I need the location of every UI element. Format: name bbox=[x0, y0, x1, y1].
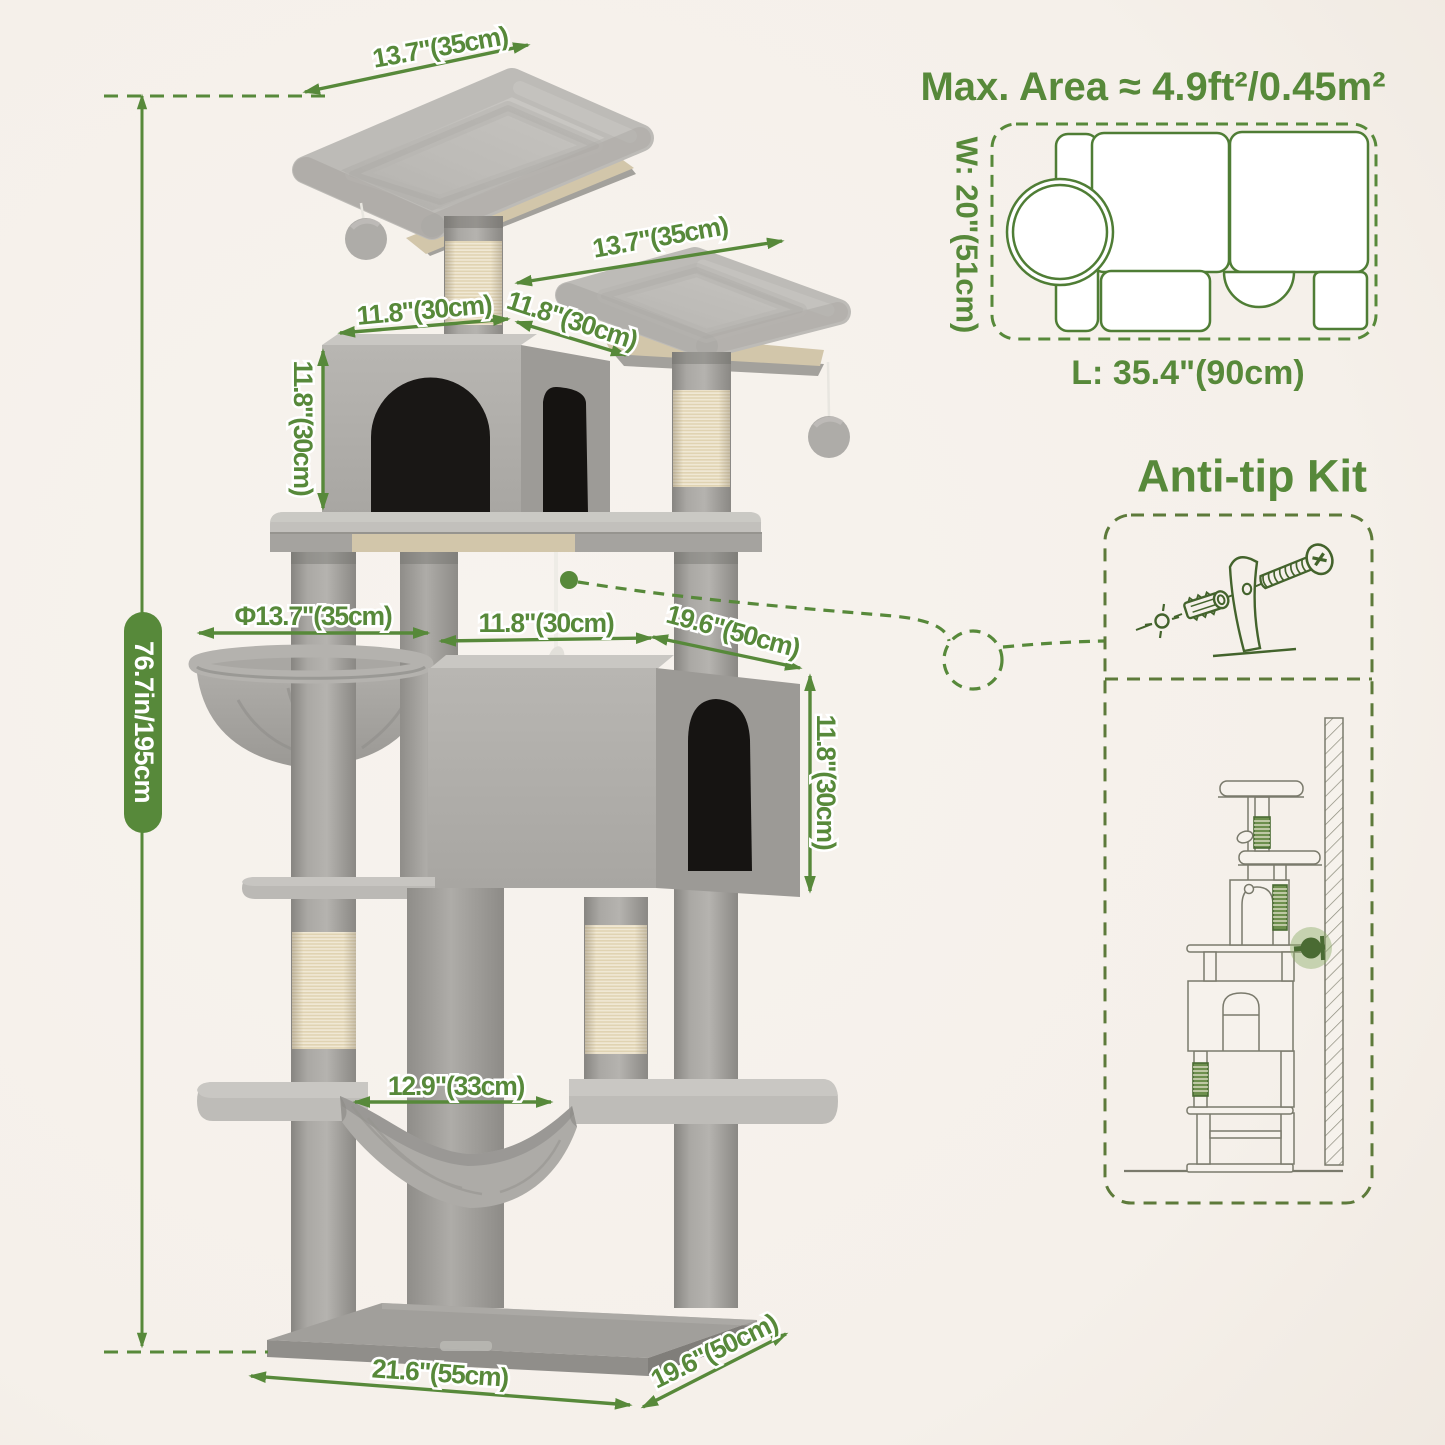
svg-text:76.7in/195cm: 76.7in/195cm bbox=[129, 641, 159, 803]
svg-text:12.9"(33cm): 12.9"(33cm) bbox=[388, 1071, 525, 1101]
svg-text:W: 20"(51cm): W: 20"(51cm) bbox=[950, 137, 985, 334]
svg-text:Anti-tip Kit: Anti-tip Kit bbox=[1137, 451, 1367, 502]
svg-text:Φ13.7"(35cm): Φ13.7"(35cm) bbox=[235, 601, 392, 631]
svg-text:11.8"(30cm): 11.8"(30cm) bbox=[811, 715, 841, 850]
svg-text:11.8"(30cm): 11.8"(30cm) bbox=[288, 361, 318, 496]
svg-text:11.8"(30cm): 11.8"(30cm) bbox=[479, 608, 614, 638]
svg-text:Max. Area ≈ 4.9ft²/0.45m²: Max. Area ≈ 4.9ft²/0.45m² bbox=[920, 65, 1385, 109]
svg-text:L: 35.4"(90cm): L: 35.4"(90cm) bbox=[1071, 354, 1304, 392]
